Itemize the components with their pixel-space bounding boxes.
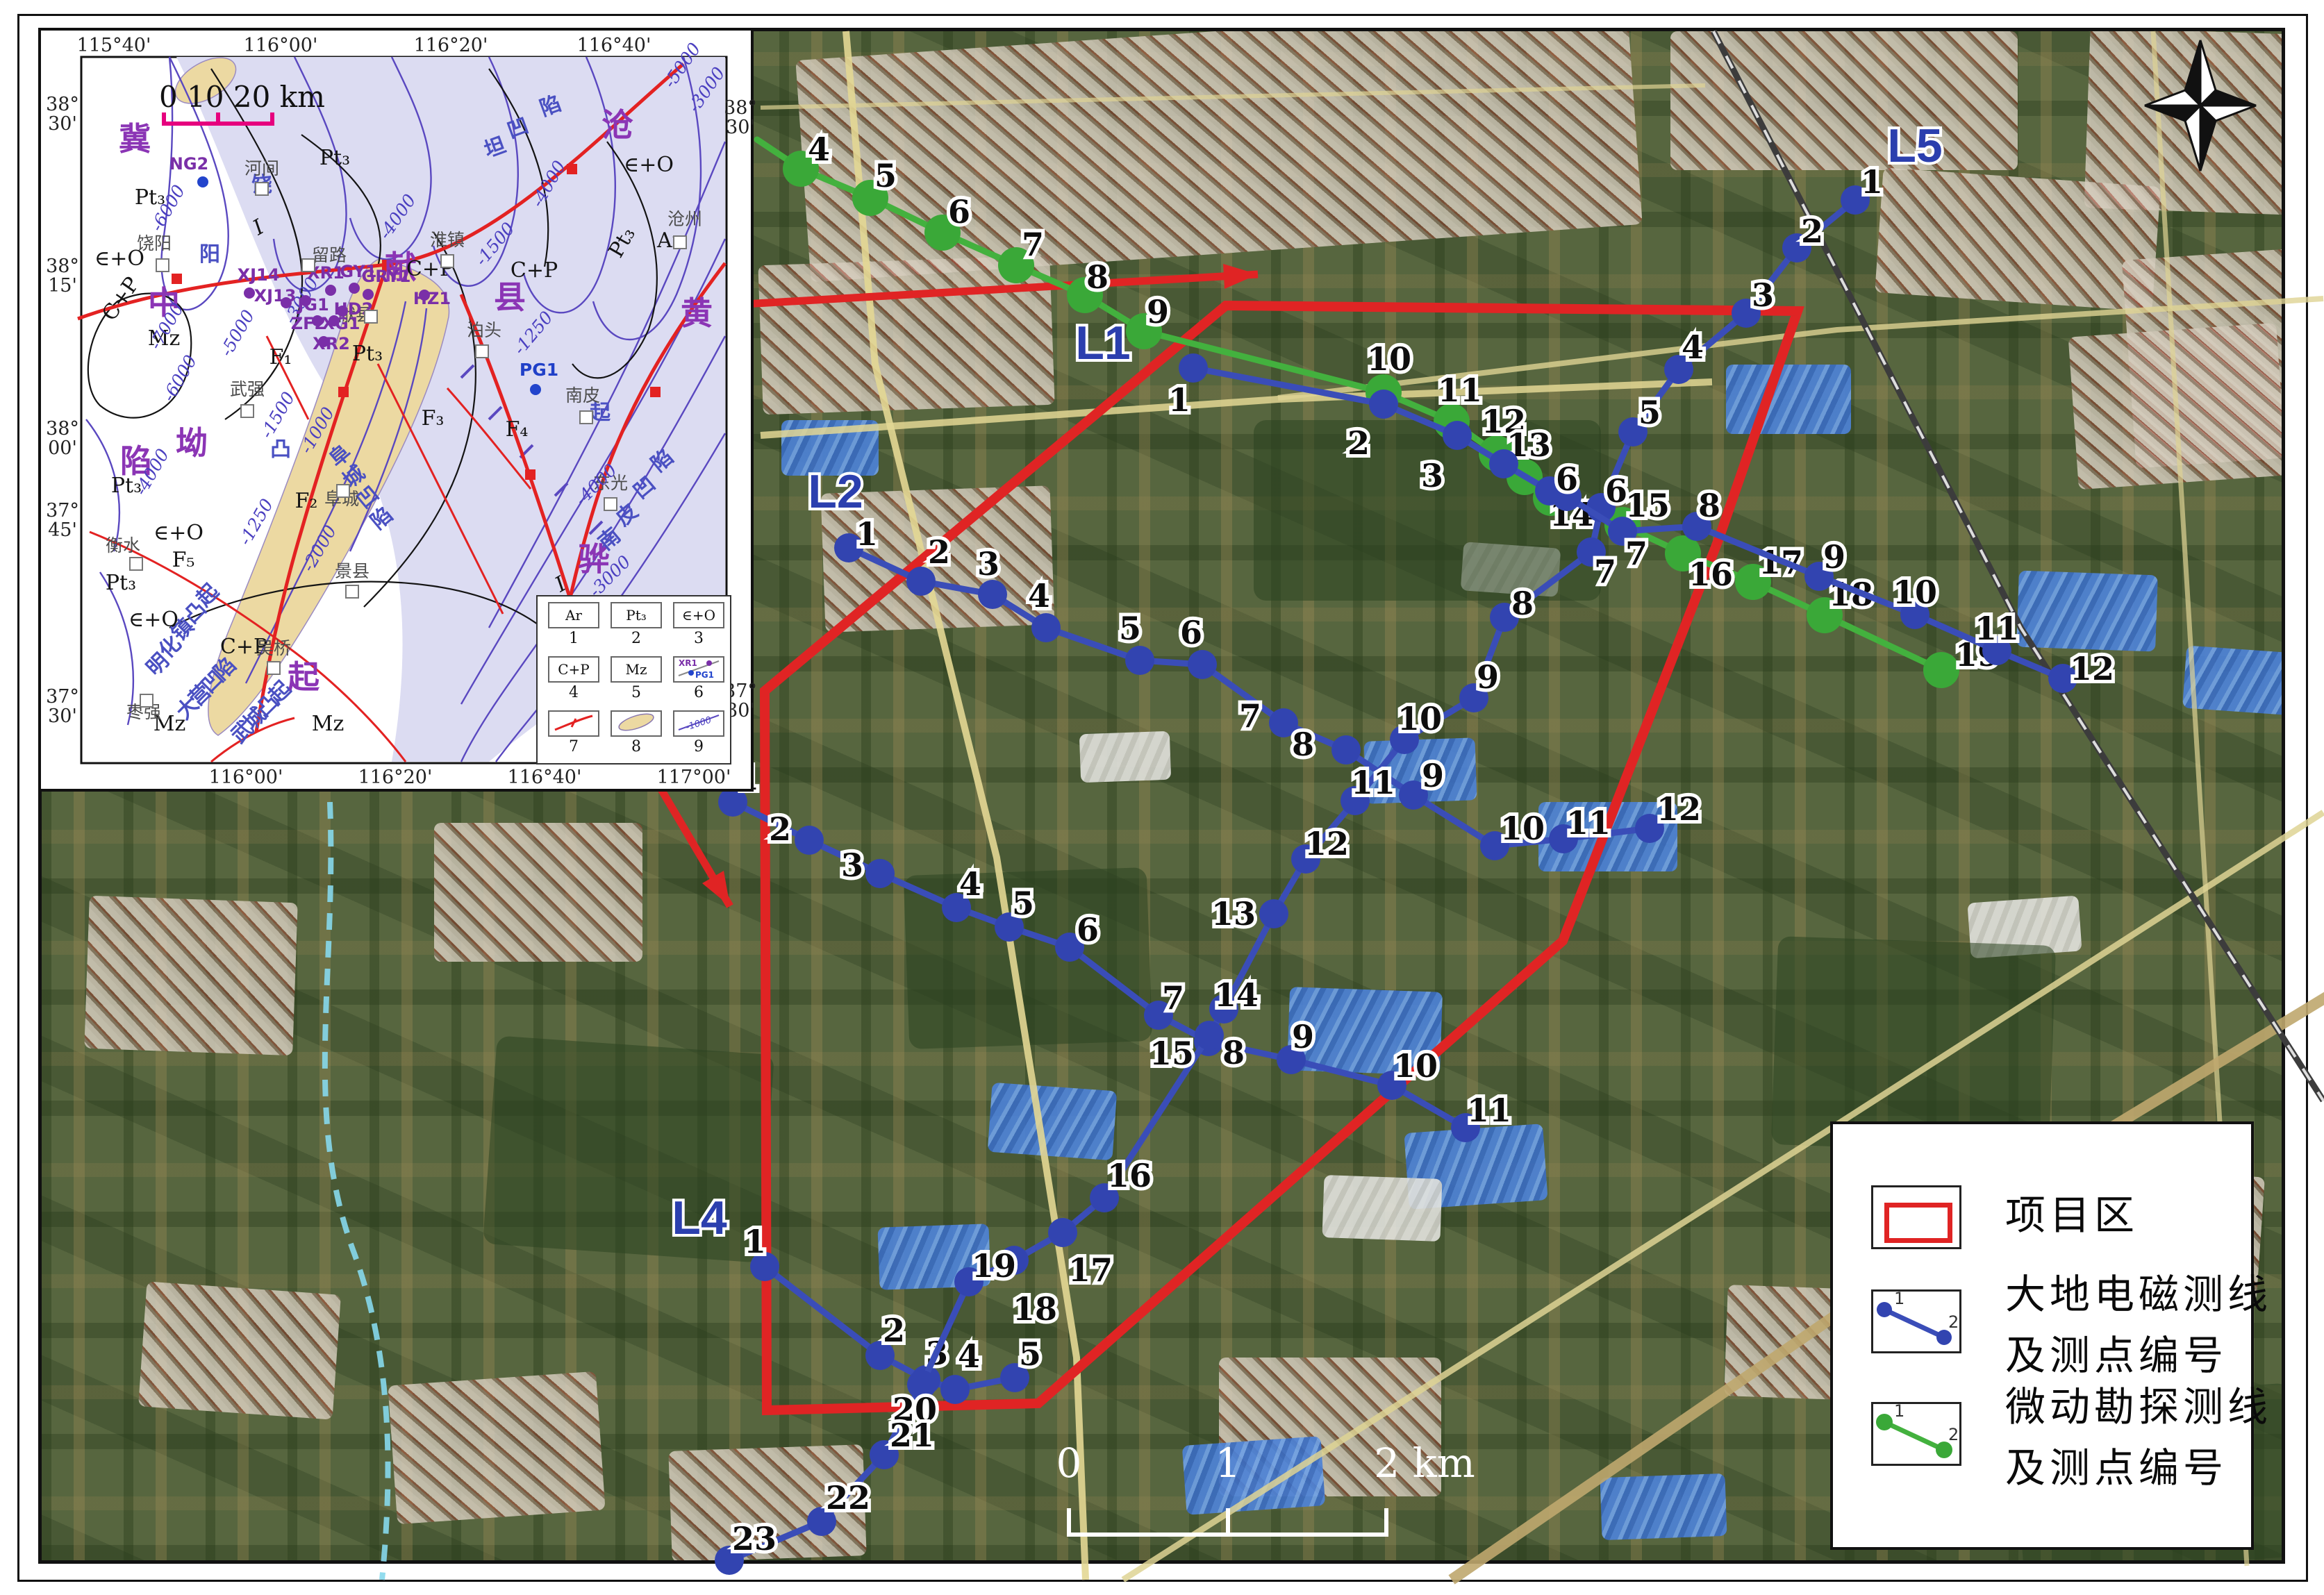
survey-point-label-L3-5: 5 bbox=[1012, 885, 1034, 922]
survey-point-label-L1mt-3: 3 bbox=[1421, 457, 1443, 494]
inset-label: 饶阳 bbox=[137, 233, 172, 253]
survey-point-L5-13 bbox=[1259, 899, 1288, 928]
survey-point-label-L1mt-6: 6 bbox=[1556, 460, 1578, 498]
survey-point-label-L5-10: 10 bbox=[1397, 700, 1442, 737]
inset-coord: 116°40' bbox=[577, 35, 651, 56]
survey-point-label-L2-5: 5 bbox=[1119, 610, 1141, 647]
survey-point-label-L5-15: 15 bbox=[1149, 1035, 1194, 1072]
inset-legend: Ar1Pt₃2∈+O3C+P4Mz5XR1PG1678-10009 bbox=[536, 595, 731, 765]
inset-legend-number: 8 bbox=[607, 738, 665, 755]
survey-point-label-L3-7: 7 bbox=[1162, 979, 1184, 1017]
survey-point-label-L5-3: 3 bbox=[1752, 276, 1774, 314]
inset-label: 沧州 bbox=[667, 209, 702, 229]
survey-point-label-L1mt-11: 11 bbox=[1975, 610, 2019, 647]
survey-point-label-L5-21: 21 bbox=[890, 1417, 934, 1454]
inset-label: 黄 bbox=[681, 294, 713, 332]
inset-coord: 30' bbox=[48, 705, 77, 727]
survey-point-label-L1mt-12: 12 bbox=[2070, 650, 2114, 687]
inset-label: GRY1 bbox=[362, 267, 411, 286]
survey-point-label-L5-14: 14 bbox=[1214, 976, 1259, 1014]
survey-point-label-L2-11: 11 bbox=[1566, 804, 1611, 842]
inset-coord: 00' bbox=[48, 437, 77, 459]
survey-point-label-L1mt-7: 7 bbox=[1625, 535, 1647, 572]
survey-point-label-L1-5: 5 bbox=[874, 157, 897, 194]
survey-point-L2-5 bbox=[1125, 646, 1154, 675]
inset-label: 坳 bbox=[176, 424, 208, 462]
survey-point-label-L1-16: 16 bbox=[1688, 556, 1733, 593]
survey-point-label-L1mt-2: 2 bbox=[1347, 424, 1370, 462]
survey-point-label-L1-9: 9 bbox=[1147, 293, 1169, 331]
inset-leader-arrowhead bbox=[1223, 264, 1258, 289]
svg-text:2: 2 bbox=[1948, 1312, 1959, 1332]
inset-label: XR2 bbox=[313, 334, 350, 353]
survey-point-L3-2 bbox=[795, 826, 824, 855]
survey-point-L3-3 bbox=[865, 859, 895, 888]
survey-point-label-L1-15: 15 bbox=[1625, 487, 1670, 524]
inset-well-dot bbox=[325, 285, 336, 296]
inset-label: Pt₃ bbox=[319, 146, 350, 170]
inset-legend-item-7: 7 bbox=[545, 710, 603, 760]
inset-leader-arrowhead bbox=[702, 871, 730, 906]
survey-point-label-L5-13: 13 bbox=[1211, 895, 1256, 933]
inset-label: ∈+O bbox=[128, 608, 179, 632]
inset-town-marker bbox=[580, 411, 592, 424]
survey-point-label-L5-12: 12 bbox=[1304, 825, 1349, 862]
inset-well-dot bbox=[329, 315, 340, 326]
survey-point-label-L2-9: 9 bbox=[1422, 757, 1444, 794]
survey-point-L1mt-1 bbox=[1179, 353, 1208, 383]
inset-legend-symbol: Mz bbox=[611, 656, 662, 683]
survey-point-label-L4-1: 1 bbox=[744, 1223, 766, 1260]
legend-label-microtremor-line-2: 及测点编号 bbox=[2005, 1438, 2227, 1498]
inset-well-dot-blue bbox=[530, 384, 541, 395]
survey-point-label-L5-16: 16 bbox=[1107, 1157, 1152, 1194]
inset-label: XG1 bbox=[322, 314, 360, 333]
inset-label: 县 bbox=[494, 278, 526, 316]
inset-coord: 38° bbox=[46, 94, 79, 115]
survey-point-label-L5-23: 23 bbox=[732, 1520, 777, 1558]
survey-point-label-L2-3: 3 bbox=[977, 545, 999, 583]
survey-point-L1-19 bbox=[1923, 652, 1959, 688]
line-label-L4: L4 bbox=[672, 1192, 727, 1244]
inset-well-dot bbox=[244, 287, 255, 299]
survey-point-label-L4-5: 5 bbox=[1019, 1335, 1041, 1373]
inset-legend-symbol bbox=[548, 710, 599, 737]
inset-well-dot bbox=[318, 336, 329, 347]
inset-legend-item-1: Ar1 bbox=[545, 602, 603, 652]
inset-town-marker bbox=[130, 558, 142, 570]
inset-coord: 45' bbox=[48, 519, 77, 541]
inset-town-marker bbox=[156, 259, 169, 272]
inset-label: 沧 bbox=[601, 106, 633, 144]
survey-point-label-L1-6: 6 bbox=[948, 193, 970, 231]
inset-town-marker bbox=[365, 310, 377, 323]
inset-legend-item-4: C+P4 bbox=[545, 656, 603, 706]
inset-label: 冀 bbox=[119, 120, 151, 158]
inset-label: 景县 bbox=[335, 561, 370, 581]
inset-coord: 115°40' bbox=[77, 35, 151, 56]
inset-well-dot bbox=[300, 295, 311, 306]
project-area-outline bbox=[765, 306, 1798, 1410]
survey-point-label-L1mt-1: 1 bbox=[1168, 381, 1190, 419]
inset-legend-number: 1 bbox=[545, 630, 603, 647]
survey-point-L5-17 bbox=[1048, 1218, 1077, 1247]
inset-town-marker bbox=[337, 485, 349, 497]
survey-point-label-L5-18: 18 bbox=[1013, 1290, 1057, 1328]
survey-point-label-L5-17: 17 bbox=[1068, 1251, 1113, 1289]
inset-coord: 30' bbox=[48, 113, 77, 135]
survey-point-label-L1-11: 11 bbox=[1438, 371, 1482, 409]
survey-point-label-L4-2: 2 bbox=[883, 1312, 905, 1349]
inset-label: F₅ bbox=[172, 548, 195, 572]
survey-point-label-L3-9: 9 bbox=[1292, 1018, 1314, 1055]
survey-point-L1mt-2 bbox=[1369, 390, 1398, 419]
inset-town-marker bbox=[604, 498, 617, 510]
inset-town-marker bbox=[302, 259, 315, 272]
inset-legend-symbol: C+P bbox=[548, 656, 599, 683]
line-label-L2: L2 bbox=[808, 465, 863, 518]
inset-coord: 38° bbox=[724, 97, 756, 119]
scale-bar bbox=[1069, 1508, 1386, 1535]
inset-label: ∈+O bbox=[153, 521, 204, 545]
inset-town-marker bbox=[140, 694, 153, 707]
survey-point-label-L5-5: 5 bbox=[1638, 394, 1661, 431]
inset-label: 武强 bbox=[230, 379, 265, 399]
survey-point-label-L1-8: 8 bbox=[1086, 258, 1109, 296]
inset-label: XJ14 bbox=[238, 265, 280, 285]
legend-symbol-mt-line: 1 2 bbox=[1871, 1289, 1961, 1353]
inset-legend-symbol bbox=[611, 710, 662, 737]
line-label-L1: L1 bbox=[1075, 317, 1130, 369]
inset-label: HZ1 bbox=[413, 289, 451, 308]
inset-legend-number: 4 bbox=[545, 684, 603, 701]
survey-point-label-L5-6: 6 bbox=[1605, 472, 1627, 510]
legend-symbol-microtremor-line: 1 2 bbox=[1871, 1402, 1961, 1466]
inset-coord: 116°20' bbox=[414, 35, 488, 56]
survey-point-L2-8 bbox=[1331, 735, 1361, 765]
inset-coord: 37° bbox=[46, 500, 79, 521]
inset-label: NG2 bbox=[169, 154, 208, 174]
inset-legend-item-8: 8 bbox=[607, 710, 665, 760]
inset-label: 南皮 bbox=[565, 385, 600, 406]
inset-legend-symbol: ∈+O bbox=[673, 602, 724, 628]
inset-label: F₄ bbox=[506, 417, 529, 442]
survey-point-L2-6 bbox=[1188, 650, 1217, 679]
survey-point-label-L3-2: 2 bbox=[769, 810, 791, 848]
legend-symbol-project-area bbox=[1871, 1185, 1961, 1249]
inset-legend-number: 9 bbox=[670, 738, 728, 755]
survey-point-label-L1-4: 4 bbox=[808, 131, 830, 168]
inset-label: Pt₃ bbox=[106, 571, 136, 595]
inset-label: 阳 bbox=[199, 242, 220, 267]
survey-point-label-L4-4: 4 bbox=[958, 1337, 980, 1375]
inset-well-dot bbox=[312, 315, 323, 326]
survey-point-label-L2-8: 8 bbox=[1292, 726, 1314, 763]
survey-point-label-L5-8: 8 bbox=[1511, 585, 1534, 622]
inset-legend-number: 5 bbox=[607, 684, 665, 701]
inset-well-dot-blue bbox=[197, 176, 208, 187]
svg-text:1: 1 bbox=[1894, 1404, 1904, 1421]
survey-point-L2-3 bbox=[978, 580, 1007, 609]
inset-town-marker bbox=[441, 255, 454, 267]
inset-well-dot bbox=[337, 306, 348, 317]
map-legend: 项目区 1 2 大地电磁测线 及测点编号 1 2 bbox=[1830, 1121, 2254, 1550]
inset-well-dot bbox=[281, 297, 292, 308]
inset-label: 衡水 bbox=[106, 535, 140, 556]
legend-label-microtremor-line-1: 微动勘探测线 bbox=[2005, 1377, 2272, 1437]
survey-point-label-L2-1: 1 bbox=[856, 515, 878, 553]
survey-point-label-L5-19: 19 bbox=[972, 1247, 1016, 1285]
survey-point-label-L1mt-10: 10 bbox=[1893, 574, 1937, 611]
inset-label: Mz bbox=[312, 712, 345, 736]
inset-label: ∈+O bbox=[624, 153, 674, 177]
survey-point-label-L3-11: 11 bbox=[1467, 1092, 1511, 1129]
mt-line-swatch: 1 2 bbox=[1873, 1292, 1959, 1351]
survey-point-L4-4 bbox=[940, 1375, 970, 1404]
figure-root: 45678910111213141516171819L1123456789101… bbox=[0, 0, 2324, 1595]
inset-legend-symbol: -1000 bbox=[673, 710, 724, 737]
inset-legend-number: 3 bbox=[670, 630, 728, 647]
north-arrow bbox=[2139, 35, 2264, 181]
svg-text:2: 2 bbox=[1948, 1425, 1959, 1444]
svg-text:PG1: PG1 bbox=[695, 670, 714, 678]
inset-well-dot bbox=[419, 290, 430, 301]
svg-text:XR1: XR1 bbox=[679, 658, 697, 668]
inset-label: 淮镇 bbox=[430, 230, 465, 250]
survey-point-L5-15 bbox=[1195, 1021, 1224, 1050]
survey-point-L2-2 bbox=[906, 567, 936, 596]
legend-label-project-area: 项目区 bbox=[2005, 1185, 2139, 1245]
survey-point-label-L3-8: 8 bbox=[1222, 1034, 1245, 1071]
svg-text:1: 1 bbox=[1894, 1292, 1904, 1308]
inset-label: F₂ bbox=[295, 489, 318, 513]
inset-town-marker bbox=[267, 662, 280, 674]
survey-point-L2-4 bbox=[1031, 613, 1061, 642]
survey-point-label-L5-7: 7 bbox=[1594, 553, 1616, 590]
inset-legend-symbol: Ar bbox=[548, 602, 599, 628]
survey-point-L1mt-3 bbox=[1443, 421, 1472, 450]
inset-coord: 116°00' bbox=[244, 35, 318, 56]
survey-point-label-L2-4: 4 bbox=[1028, 577, 1050, 615]
survey-point-label-L3-6: 6 bbox=[1077, 911, 1099, 949]
inset-coord: 117°00' bbox=[657, 767, 731, 788]
inset-label: F₃ bbox=[422, 406, 445, 431]
inset-coord: 38° bbox=[46, 418, 79, 440]
inset-coord: 15' bbox=[48, 275, 77, 297]
survey-point-label-L2-10: 10 bbox=[1500, 810, 1545, 847]
inset-town-marker bbox=[346, 585, 358, 598]
inset-legend-number: 7 bbox=[545, 738, 603, 755]
survey-point-label-L2-2: 2 bbox=[928, 533, 950, 571]
inset-coord: 116°00' bbox=[209, 767, 283, 788]
survey-point-label-L1-10: 10 bbox=[1367, 340, 1411, 378]
inset-coord: 37° bbox=[46, 686, 79, 708]
line-label-L5: L5 bbox=[1887, 119, 1942, 172]
inset-legend-item-3: ∈+O3 bbox=[670, 602, 728, 652]
survey-point-label-L3-10: 10 bbox=[1393, 1047, 1438, 1085]
inset-label: C+P bbox=[511, 258, 558, 283]
inset-legend-item-5: Mz5 bbox=[607, 656, 665, 706]
survey-point-label-L5-1: 1 bbox=[1861, 163, 1883, 201]
scale-bar-label: 1 bbox=[1215, 1439, 1241, 1487]
inset-coord: 38° bbox=[46, 256, 79, 277]
inset-coord: 30' bbox=[726, 117, 755, 138]
inset-legend-number: 2 bbox=[607, 630, 665, 647]
inset-geological-map: 冀中坳陷献县黄沧骅起饶阳坦凹陷明化镇凸起大营凹陷武城凸起南皮凹陷阜城凹陷凸起Pt… bbox=[38, 28, 754, 792]
inset-town-marker bbox=[674, 236, 686, 249]
inset-label: 吴桥 bbox=[256, 638, 291, 658]
inset-legend-item-2: Pt₃2 bbox=[607, 602, 665, 652]
project-area-swatch bbox=[1884, 1203, 1952, 1243]
scale-bar-label: 2 km bbox=[1374, 1439, 1475, 1487]
survey-point-label-L5-4: 4 bbox=[1682, 328, 1704, 366]
survey-point-label-L3-3: 3 bbox=[841, 846, 863, 884]
legend-label-mt-line-1: 大地电磁测线 bbox=[2005, 1264, 2272, 1324]
survey-point-label-L3-4: 4 bbox=[959, 865, 981, 903]
inset-well-dot bbox=[363, 289, 374, 300]
survey-point-label-L5-22: 22 bbox=[826, 1479, 870, 1517]
inset-legend-number: 6 bbox=[670, 684, 728, 701]
inset-town-marker bbox=[256, 183, 268, 195]
survey-point-L1mt-4 bbox=[1489, 449, 1518, 478]
inset-label: PG1 bbox=[520, 360, 558, 380]
scale-bar-label: 0 bbox=[1056, 1439, 1082, 1487]
inset-legend-symbol: XR1PG1 bbox=[673, 656, 724, 683]
inset-legend-item-9: -10009 bbox=[670, 710, 728, 760]
inset-coord: 116°40' bbox=[508, 767, 582, 788]
inset-label: 泊头 bbox=[467, 320, 501, 340]
inset-label: 河间 bbox=[244, 158, 279, 178]
inset-legend-item-6: XR1PG16 bbox=[670, 656, 728, 706]
inset-label: Pt₃ bbox=[352, 342, 383, 366]
inset-town-marker bbox=[241, 405, 254, 417]
svg-text:-1000: -1000 bbox=[685, 715, 713, 733]
microtremor-line-swatch: 1 2 bbox=[1873, 1404, 1959, 1464]
survey-point-label-L2-7: 7 bbox=[1239, 697, 1261, 735]
inset-legend-symbol: Pt₃ bbox=[611, 602, 662, 628]
survey-point-label-L5-2: 2 bbox=[1801, 212, 1823, 250]
inset-coord: 116°20' bbox=[358, 767, 433, 788]
inset-label: F₁ bbox=[269, 345, 292, 369]
inset-town-marker bbox=[476, 345, 488, 358]
inset-scale-text: 0 10 20 km bbox=[159, 80, 325, 114]
survey-point-label-L2-6: 6 bbox=[1180, 614, 1202, 651]
inset-well-dot bbox=[349, 283, 360, 294]
survey-point-label-L1mt-8: 8 bbox=[1698, 487, 1720, 524]
survey-point-label-L1mt-9: 9 bbox=[1823, 538, 1845, 576]
survey-point-label-L5-9: 9 bbox=[1477, 658, 1499, 696]
survey-point-label-L5-11: 11 bbox=[1351, 764, 1395, 801]
survey-point-label-L2-12: 12 bbox=[1657, 790, 1701, 828]
survey-point-label-L1-7: 7 bbox=[1022, 226, 1044, 263]
